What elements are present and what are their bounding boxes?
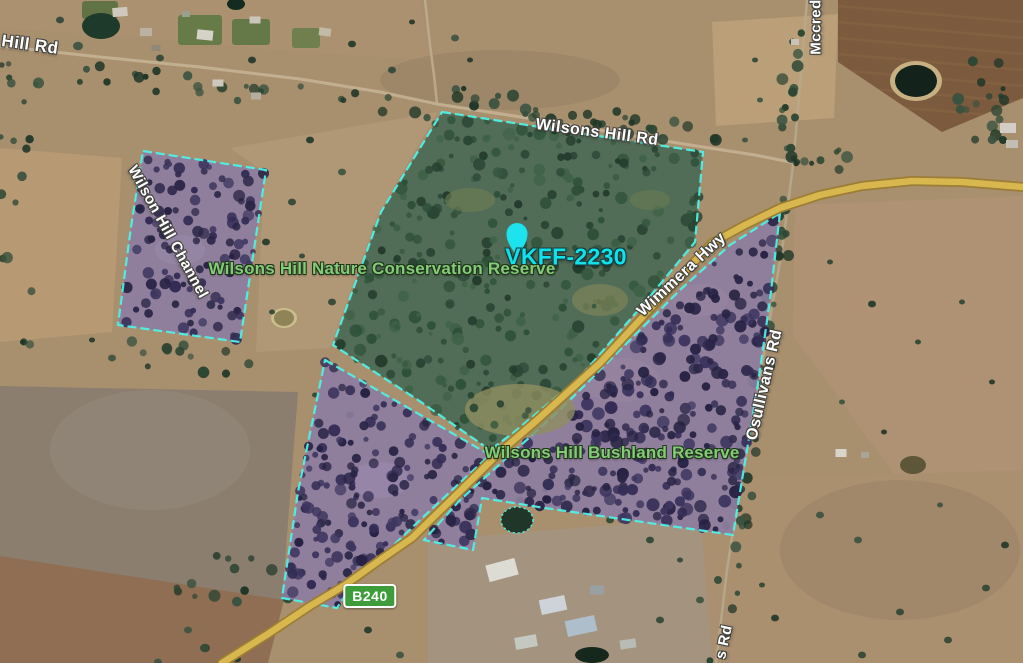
satellite-imagery: [0, 0, 1023, 663]
pin-icon: [504, 221, 530, 258]
farm-pond: [501, 507, 533, 533]
satellite-map-view[interactable]: VKFF-2230 Wilsons Hill Nature Conservati…: [0, 0, 1023, 663]
route-shield-b240: B240: [343, 584, 396, 608]
map-marker[interactable]: [504, 221, 530, 263]
